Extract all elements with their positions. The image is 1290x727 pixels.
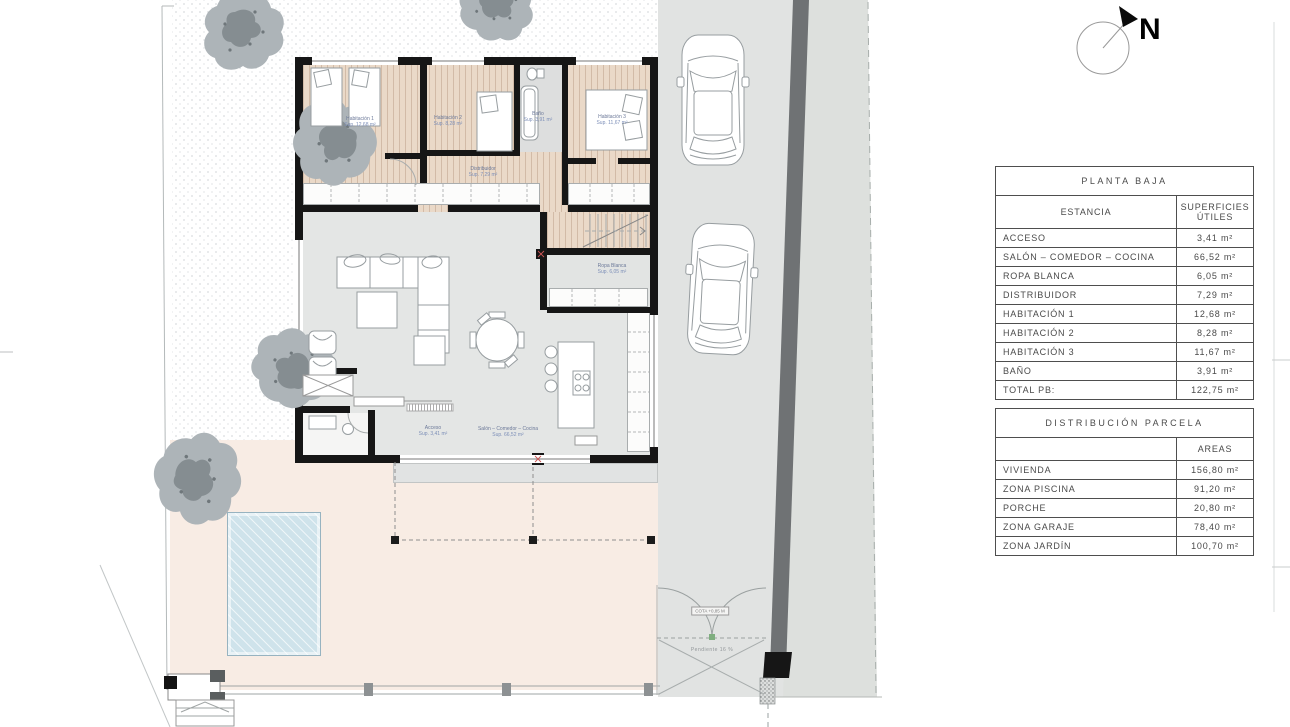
wall-segment — [448, 205, 540, 212]
room-label-salon: Salón – Comedor – CocinaSup. 66,52 m² — [478, 426, 538, 439]
table-row: HABITACIÓN 311,67 m² — [996, 343, 1253, 362]
room-label-habitacion3: Habitación 3Sup. 11,67 m² — [596, 114, 627, 127]
wall-segment — [568, 158, 596, 164]
room-label-ropa-blanca: Ropa BlancaSup. 6,05 m² — [598, 263, 627, 276]
slope-label: Pendiente 16 % — [691, 647, 733, 653]
north-arrow-icon: N — [1077, 6, 1161, 74]
table-header-row: ESTANCIA SUPERFICIESÚTILES — [996, 196, 1253, 229]
floor-plan-sheet: N — [0, 0, 1290, 727]
room-label-habitacion2: Habitación 2Sup. 8,28 m² — [434, 115, 463, 128]
bathroom-floor — [520, 65, 562, 152]
table-row: ZONA GARAJE78,40 m² — [996, 518, 1253, 537]
window — [650, 315, 658, 447]
wall-segment — [547, 248, 650, 255]
window — [576, 57, 642, 65]
table-title: PLANTA BAJA — [996, 167, 1253, 196]
garage-zone — [658, 0, 808, 697]
table-row: ROPA BLANCA6,05 m² — [996, 267, 1253, 286]
swimming-pool — [227, 512, 321, 656]
wall-segment — [547, 307, 650, 313]
table-row: ACCESO3,41 m² — [996, 229, 1253, 248]
column-header: AREAS — [1176, 438, 1253, 460]
wall-segment — [303, 153, 365, 159]
table-row: VIVIENDA156,80 m² — [996, 461, 1253, 480]
wall-segment — [303, 205, 418, 212]
window — [312, 57, 398, 65]
wall-segment — [427, 150, 520, 156]
kitchen-cabinets-east — [627, 312, 650, 452]
stairs-floor — [547, 212, 650, 248]
wall-segment — [420, 65, 427, 183]
table-row: ZONA JARDÍN100,70 m² — [996, 537, 1253, 555]
table-row: TOTAL PB:122,75 m² — [996, 381, 1253, 399]
sliding-door-opening — [400, 455, 590, 463]
entry-floor — [303, 413, 369, 455]
table-header-row: AREAS — [996, 438, 1253, 461]
room-label-acceso: AccesoSup. 3,41 m² — [419, 425, 448, 438]
wall-segment — [368, 410, 375, 457]
table-distribucion-parcela: DISTRIBUCIÓN PARCELA AREAS VIVIENDA156,8… — [995, 408, 1254, 556]
wall-segment — [590, 455, 658, 463]
room-label-distribuidor: DistribuidorSup. 7,29 m² — [469, 166, 498, 179]
wall-segment — [295, 368, 357, 374]
wall-segment — [295, 406, 350, 413]
table-row: HABITACIÓN 28,28 m² — [996, 324, 1253, 343]
porch — [393, 463, 658, 483]
wall-segment — [385, 153, 420, 159]
wall-segment — [562, 65, 568, 205]
table-title: DISTRIBUCIÓN PARCELA — [996, 409, 1253, 438]
column-header: ESTANCIA — [996, 196, 1176, 228]
column-header — [996, 438, 1176, 460]
table-row: HABITACIÓN 112,68 m² — [996, 305, 1253, 324]
room-label-bano: BañoSup. 3,91 m² — [524, 111, 553, 124]
table-row: PORCHE20,80 m² — [996, 499, 1253, 518]
wardrobe-row-2 — [568, 183, 650, 205]
table-row: ZONA PISCINA91,20 m² — [996, 480, 1253, 499]
window — [432, 57, 484, 65]
kitchen-counter-top — [549, 288, 648, 307]
north-label: N — [1139, 13, 1161, 46]
room-label-habitacion1: Habitación 1Sup. 12,68 m² — [344, 116, 375, 129]
wall-segment — [514, 65, 520, 152]
column-header: SUPERFICIESÚTILES — [1176, 196, 1253, 228]
wall-segment — [540, 212, 547, 310]
cota-label: COTA +0,85 M — [691, 607, 729, 616]
wall-segment — [618, 158, 650, 164]
table-row: SALÓN – COMEDOR – COCINA66,52 m² — [996, 248, 1253, 267]
garden-area-left — [172, 0, 295, 443]
table-row: BAÑO3,91 m² — [996, 362, 1253, 381]
table-planta-baja: PLANTA BAJA ESTANCIA SUPERFICIESÚTILES A… — [995, 166, 1254, 400]
wall-segment — [295, 455, 400, 463]
structural-column — [536, 249, 546, 259]
window — [295, 240, 303, 335]
wall-segment — [568, 205, 650, 212]
table-row: DISTRIBUIDOR7,29 m² — [996, 286, 1253, 305]
wardrobe-row-1 — [303, 183, 540, 205]
